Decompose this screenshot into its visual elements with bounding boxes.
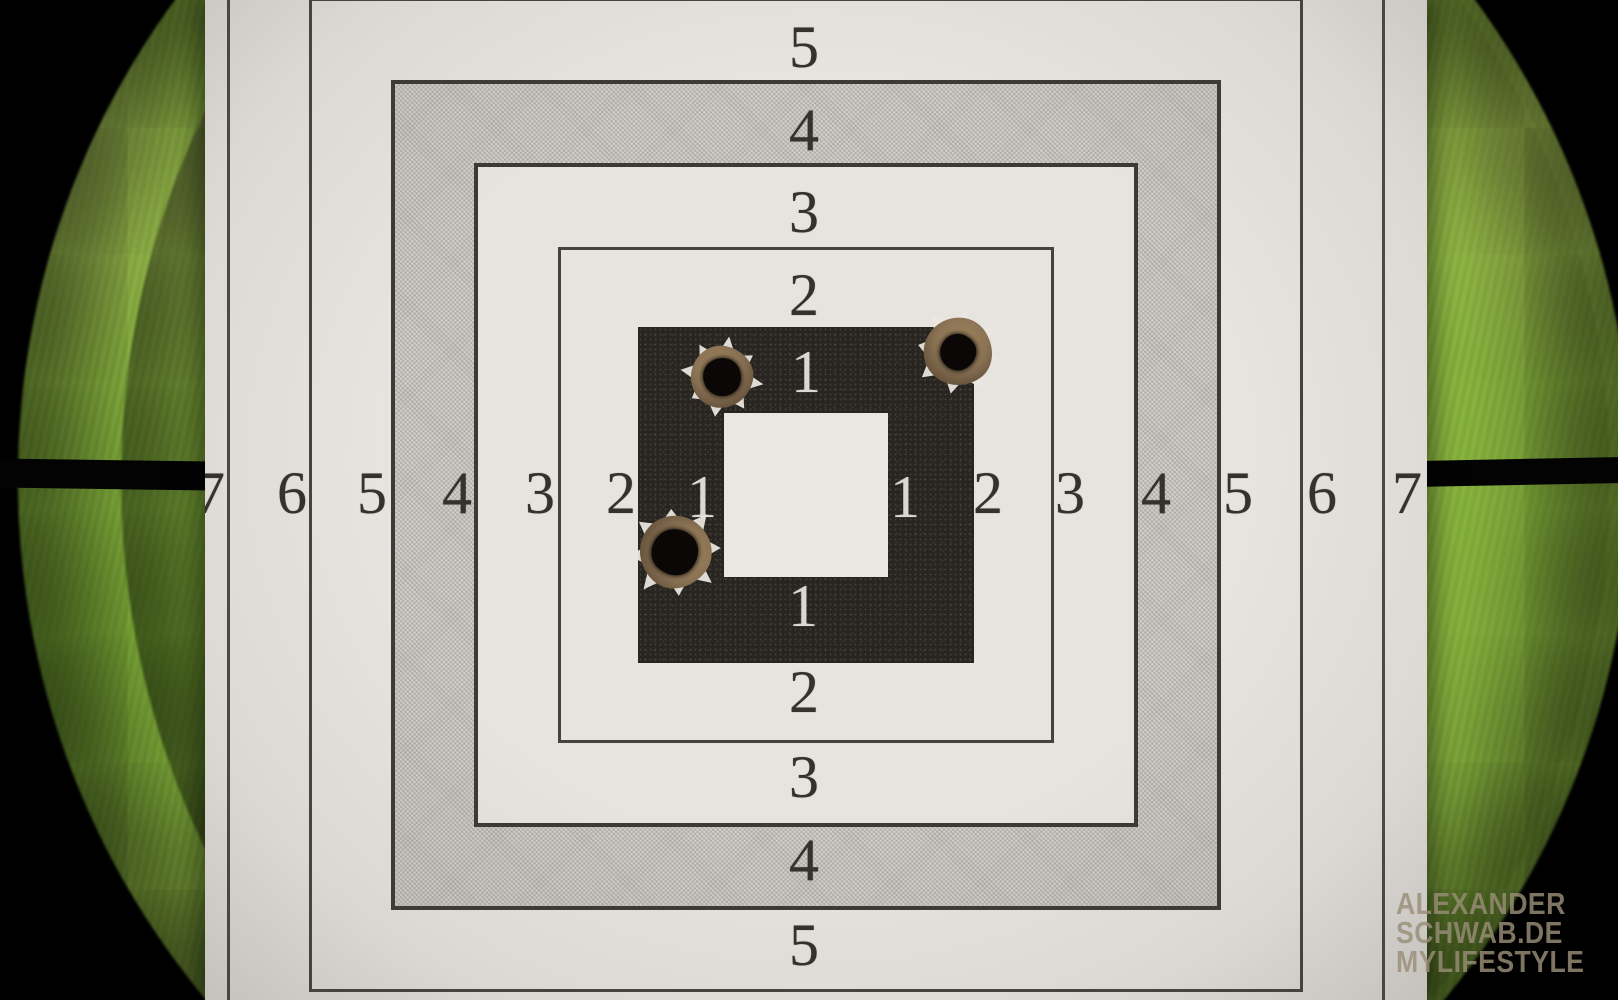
ring-label: 2: [789, 662, 819, 722]
ring-label: 6: [277, 463, 307, 523]
target-paper: 7 6 5 4 3 2 1 1 2 3 4 5 6 7 5 4 3 2 1 1 …: [205, 0, 1427, 1000]
ring-label: 3: [525, 463, 555, 523]
ring-label: 1: [890, 467, 920, 527]
watermark-line: ALEXANDER: [1396, 889, 1584, 918]
ring-label: 5: [1223, 463, 1253, 523]
ring-label: 3: [789, 182, 819, 242]
ring-label: 4: [789, 100, 819, 160]
watermark-line: SCHWAB.DE: [1396, 918, 1584, 947]
watermark-line: MYLIFESTYLE: [1396, 947, 1584, 976]
ring-label: 1: [791, 342, 821, 402]
ring-label: 5: [789, 17, 819, 77]
ring-label: 4: [442, 463, 472, 523]
scope-reticle-bar-left: [0, 458, 212, 490]
ring-label: 3: [789, 747, 819, 807]
scope-reticle-bar-right: [1419, 457, 1618, 487]
ring-label: 3: [1055, 463, 1085, 523]
center-square: [724, 413, 888, 577]
ring-label: 7: [1392, 463, 1422, 523]
ring-label: 1: [788, 576, 818, 636]
ring-label: 4: [789, 830, 819, 890]
ring-label: 2: [789, 265, 819, 325]
ring-label: 2: [606, 463, 636, 523]
ring-label: 5: [789, 915, 819, 975]
ring-label: 6: [1307, 463, 1337, 523]
ring-label: 4: [1141, 463, 1171, 523]
watermark: ALEXANDER SCHWAB.DE MYLIFESTYLE: [1396, 889, 1584, 976]
ring-label: 5: [357, 463, 387, 523]
ring-label: 2: [973, 463, 1003, 523]
scope-view-scene: 7 6 5 4 3 2 1 1 2 3 4 5 6 7 5 4 3 2 1 1 …: [0, 0, 1618, 1000]
bullet-hole: [673, 328, 770, 425]
ring-label: 7: [205, 463, 225, 523]
